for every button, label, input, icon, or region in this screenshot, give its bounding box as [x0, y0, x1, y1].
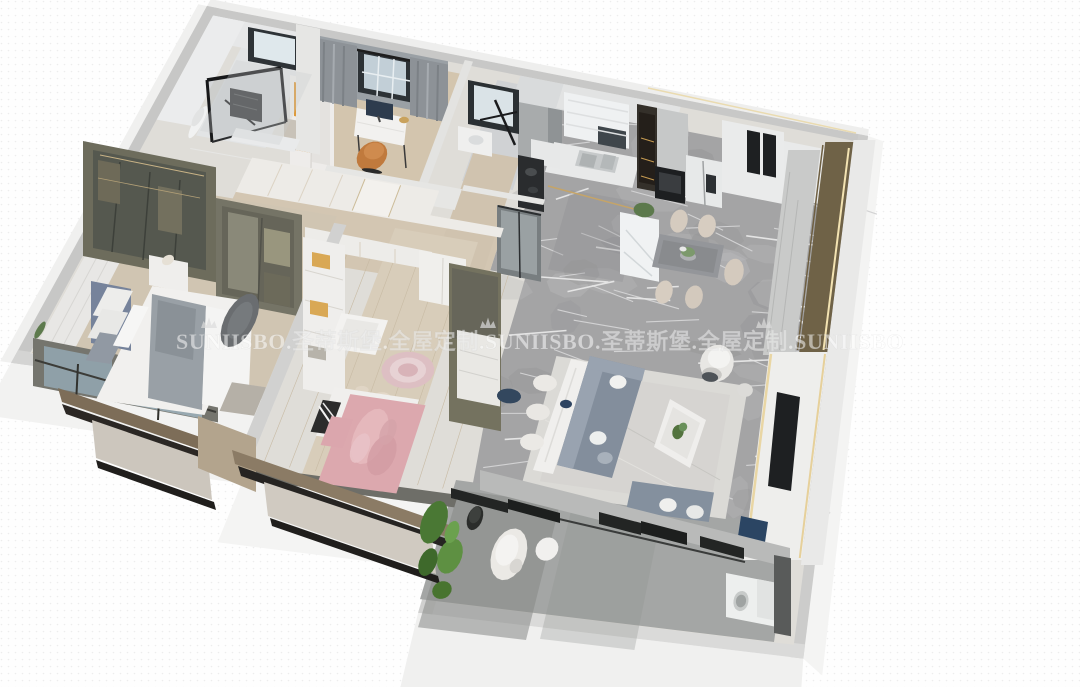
svg-text:SUNIISBO.圣蒂斯堡.全屋定制.SUNIISBO.圣蒂: SUNIISBO.圣蒂斯堡.全屋定制.SUNIISBO.圣蒂斯堡.全屋定制.SU… — [176, 329, 904, 354]
